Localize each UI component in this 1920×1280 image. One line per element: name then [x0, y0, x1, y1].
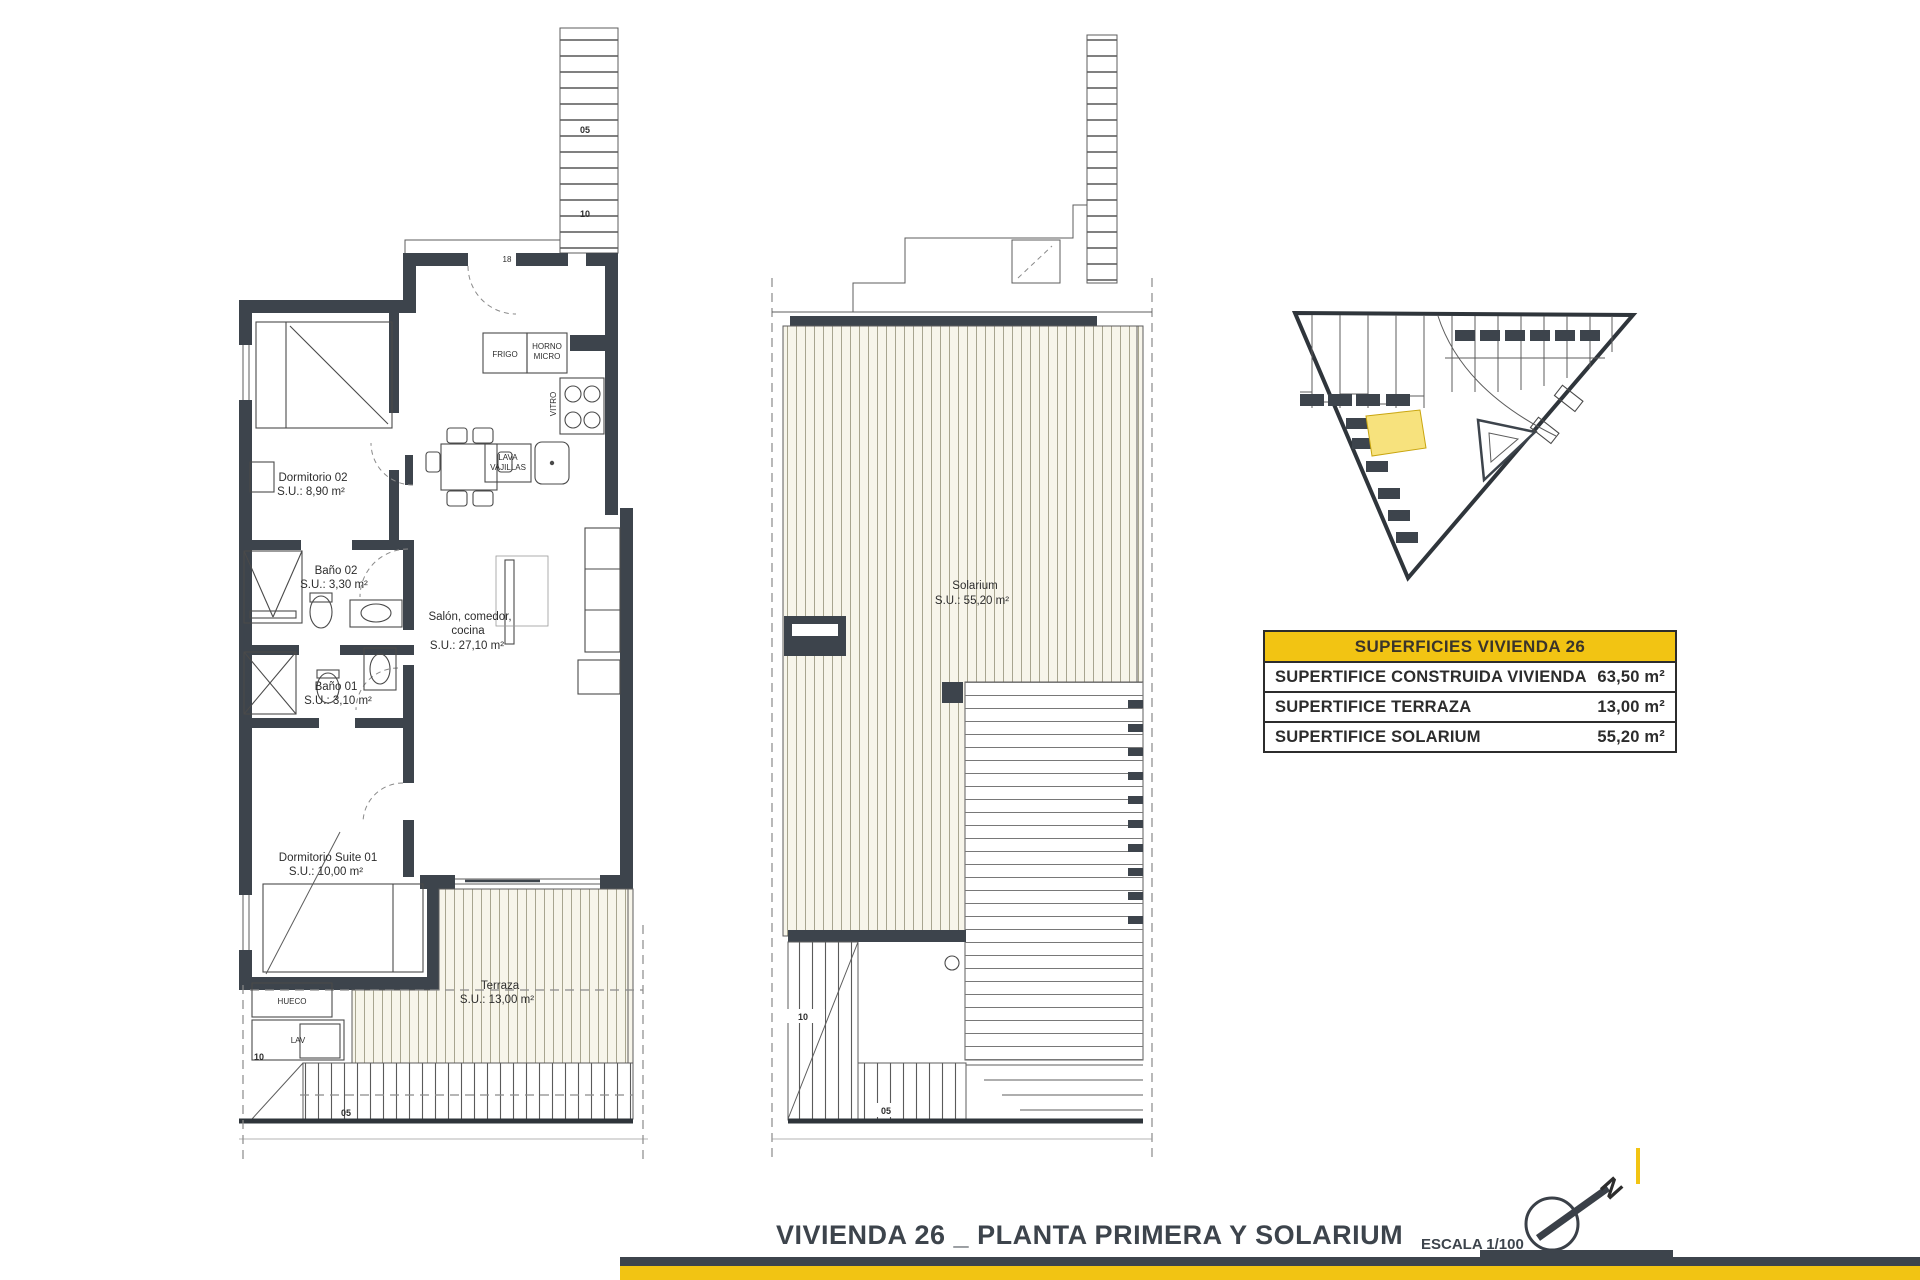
room-area: S.U.: 55,20 m² [935, 595, 1009, 607]
room-label: Dormitorio Suite 01 [279, 852, 377, 864]
row-value: 13,00 m² [1597, 698, 1665, 717]
solarium-plan: Solarium S.U.: 55,20 m² 10 05 [772, 35, 1152, 1158]
areas-table: SUPERFICIES VIVIENDA 26 SUPERTIFICE CONS… [1263, 630, 1677, 753]
bed-double [256, 322, 392, 428]
row-label: SUPERTIFICE SOLARIUM [1275, 728, 1481, 747]
footer-bar-dark [620, 1257, 1920, 1266]
exterior-stair-top [1087, 35, 1117, 283]
shower [244, 551, 302, 623]
room-label: Baño 02 [315, 565, 358, 577]
row-label: SUPERTIFICE TERRAZA [1275, 698, 1471, 717]
highlighted-unit-26 [1366, 410, 1426, 456]
stair-number: 18 [503, 255, 512, 264]
exterior-steps [303, 1063, 633, 1119]
accent-tick [1636, 1148, 1640, 1184]
room-label: Dormitorio 02 [278, 472, 347, 484]
stair-number: 05 [580, 125, 590, 135]
bed-double [263, 884, 423, 972]
tv-unit [505, 560, 514, 644]
kitchen-label: HORNO [532, 342, 562, 351]
room-area: S.U.: 13,00 m² [460, 994, 534, 1006]
table-row: SUPERTIFICE SOLARIUM 55,20 m² [1265, 721, 1675, 751]
plan-sheet: 05 10 18 [0, 0, 1920, 1280]
first-floor-plan: 05 10 18 [239, 28, 648, 1160]
row-value: 55,20 m² [1597, 728, 1665, 747]
row-label: SUPERTIFICE CONSTRUIDA VIVIENDA [1275, 668, 1587, 687]
stair-number: 05 [881, 1106, 891, 1116]
exterior-stair-top [560, 28, 618, 253]
room-area: S.U.: 8,90 m² [277, 486, 345, 498]
room-area: S.U.: 10,00 m² [289, 866, 363, 878]
dining-table [441, 444, 497, 490]
room-label: Solarium [952, 580, 997, 592]
page-title: VIVIENDA 26 _ PLANTA PRIMERA Y SOLARIUM [776, 1220, 1403, 1251]
room-area: S.U.: 3,10 m² [304, 695, 372, 707]
site-plan [1295, 313, 1633, 578]
kitchen-label: LAVA [498, 453, 518, 462]
terrace-deck [352, 889, 633, 1063]
toilet [310, 596, 332, 628]
room-label: Baño 01 [315, 681, 358, 693]
kitchen-label: FRIGO [492, 350, 517, 359]
north-letter: N [1594, 1171, 1629, 1205]
table-row: SUPERTIFICE TERRAZA 13,00 m² [1265, 691, 1675, 721]
stair-number: 10 [798, 1012, 808, 1022]
room-label: cocina [451, 625, 485, 637]
row-value: 63,50 m² [1597, 668, 1665, 687]
room-label: Salón, comedor, [428, 611, 511, 623]
stair-number: 10 [580, 209, 590, 219]
footer-bar-yellow [620, 1266, 1920, 1280]
kitchen-label: MICRO [534, 352, 561, 361]
table-row: SUPERTIFICE CONSTRUIDA VIVIENDA 63,50 m² [1265, 661, 1675, 691]
kitchen-label: VAJILLAS [490, 463, 526, 472]
utility-label: LAV [291, 1036, 306, 1045]
kitchen-label: VITRO [549, 392, 558, 416]
areas-table-header: SUPERFICIES VIVIENDA 26 [1265, 632, 1675, 661]
utility-label: HUECO [278, 997, 307, 1006]
stair-number: 05 [341, 1108, 351, 1118]
stair-number: 10 [254, 1052, 264, 1062]
room-area: S.U.: 27,10 m² [430, 640, 504, 652]
room-area: S.U.: 3,30 m² [300, 579, 368, 591]
room-label: Terraza [481, 980, 520, 992]
footer-bar-dark-segment [1480, 1250, 1673, 1266]
sofa [585, 528, 620, 652]
armchair [578, 660, 620, 694]
